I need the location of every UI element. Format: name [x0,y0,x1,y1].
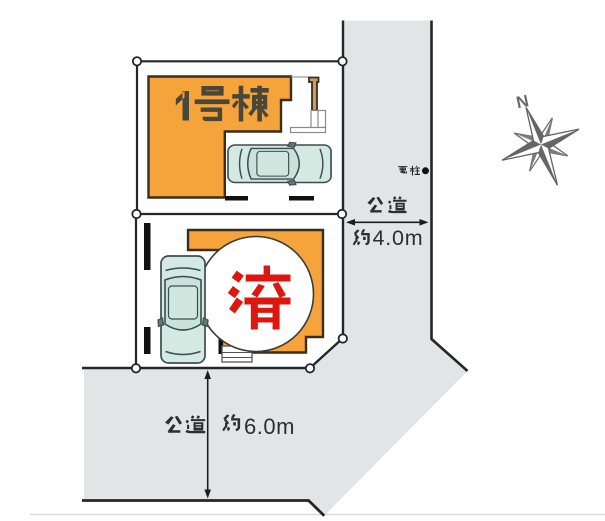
svg-text:4.0m: 4.0m [373,226,424,250]
svg-text:6.0m: 6.0m [244,414,295,439]
